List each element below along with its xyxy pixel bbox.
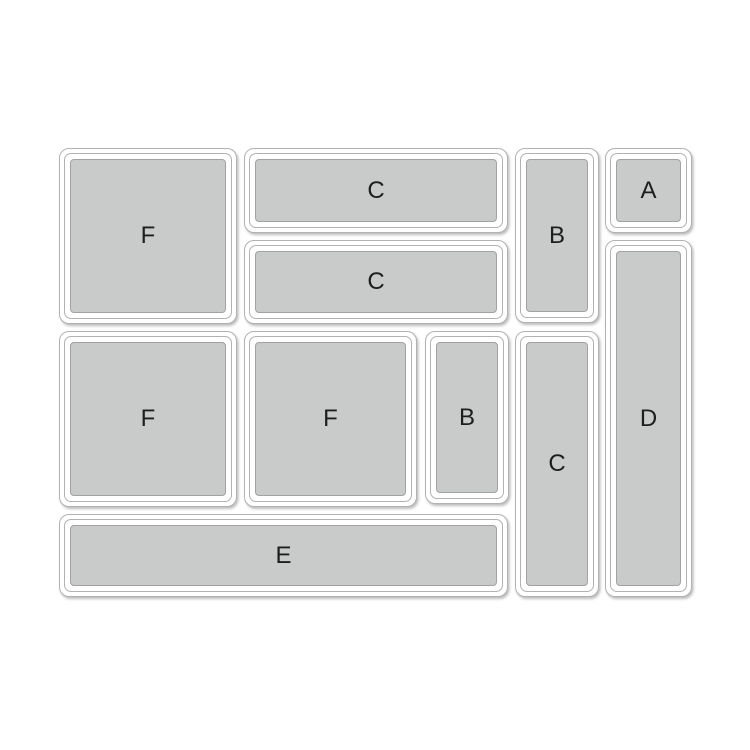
tray-inner-frame: F: [64, 153, 232, 319]
tray-inner-frame: A: [610, 153, 687, 228]
tray-label: F: [141, 224, 156, 248]
tray-pad: C: [526, 342, 588, 586]
tray-label: B: [459, 406, 475, 430]
tray-pad: A: [616, 159, 681, 222]
tray-F2: F: [59, 331, 237, 507]
tray-label: F: [323, 407, 338, 431]
tray-inner-frame: C: [520, 336, 594, 592]
tray-label: C: [367, 270, 384, 294]
tray-F3: F: [244, 331, 417, 507]
tray-pad: C: [255, 251, 497, 313]
tray-label: C: [367, 179, 384, 203]
tray-B1: B: [515, 148, 599, 323]
tray-pad: E: [70, 525, 497, 586]
tray-pad: F: [70, 342, 226, 496]
tray-pad: B: [436, 342, 498, 493]
tray-inner-frame: D: [610, 245, 687, 592]
tray-label: A: [640, 179, 656, 203]
tray-inner-frame: F: [249, 336, 412, 502]
tray-label: E: [275, 544, 291, 568]
tray-inner-frame: C: [249, 153, 503, 228]
tray-pad: C: [255, 159, 497, 222]
tray-label: F: [141, 407, 156, 431]
tray-pad: D: [616, 251, 681, 586]
tray-inner-frame: B: [430, 336, 504, 499]
tray-C2: C: [244, 240, 508, 324]
tray-D1: D: [605, 240, 692, 597]
tray-label: B: [549, 224, 565, 248]
tray-C1: C: [244, 148, 508, 233]
tray-A1: A: [605, 148, 692, 233]
tray-inner-frame: F: [64, 336, 232, 502]
tray-E1: E: [59, 514, 508, 597]
tray-B2: B: [425, 331, 509, 504]
tray-label: C: [548, 452, 565, 476]
tray-inner-frame: B: [520, 153, 594, 318]
tray-pad: F: [70, 159, 226, 313]
tray-pad: B: [526, 159, 588, 312]
tray-label: D: [640, 407, 657, 431]
tray-pad: F: [255, 342, 406, 496]
tray-F1: F: [59, 148, 237, 324]
tray-C3: C: [515, 331, 599, 597]
tray-inner-frame: C: [249, 245, 503, 319]
diagram-canvas: F C B A C: [0, 0, 750, 750]
tray-inner-frame: E: [64, 519, 503, 592]
